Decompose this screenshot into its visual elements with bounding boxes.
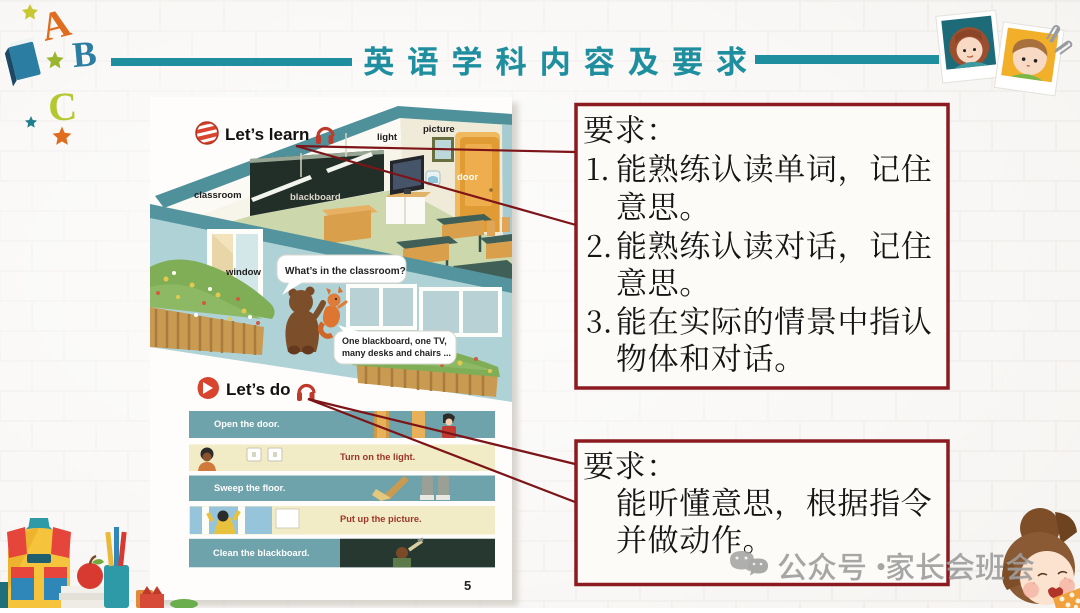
svg-text:door: door bbox=[457, 172, 478, 183]
svg-text:What’s in the classroom?: What’s in the classroom? bbox=[285, 266, 406, 277]
svg-text:One blackboard, one TV,: One blackboard, one TV, bbox=[342, 336, 447, 346]
svg-text:light: light bbox=[377, 132, 398, 143]
svg-text:picture: picture bbox=[423, 124, 455, 135]
svg-text:Let’s learn: Let’s learn bbox=[225, 125, 309, 144]
svg-text:many desks and chairs ...: many desks and chairs ... bbox=[342, 348, 451, 358]
svg-text:window: window bbox=[225, 267, 261, 278]
svg-text:classroom: classroom bbox=[194, 190, 242, 201]
svg-text:B: B bbox=[71, 33, 98, 75]
svg-text:C: C bbox=[47, 83, 78, 129]
svg-text:blackboard: blackboard bbox=[290, 192, 341, 203]
svg-text:Sweep the floor.: Sweep the floor. bbox=[214, 483, 285, 493]
svg-text:Let’s do: Let’s do bbox=[226, 380, 291, 399]
svg-text:Turn on the light.: Turn on the light. bbox=[340, 452, 415, 462]
svg-text:5: 5 bbox=[464, 578, 471, 593]
svg-text:Put up the picture.: Put up the picture. bbox=[340, 514, 422, 524]
svg-text:Clean the blackboard.: Clean the blackboard. bbox=[213, 548, 310, 558]
svg-text:Open the door.: Open the door. bbox=[214, 419, 280, 429]
